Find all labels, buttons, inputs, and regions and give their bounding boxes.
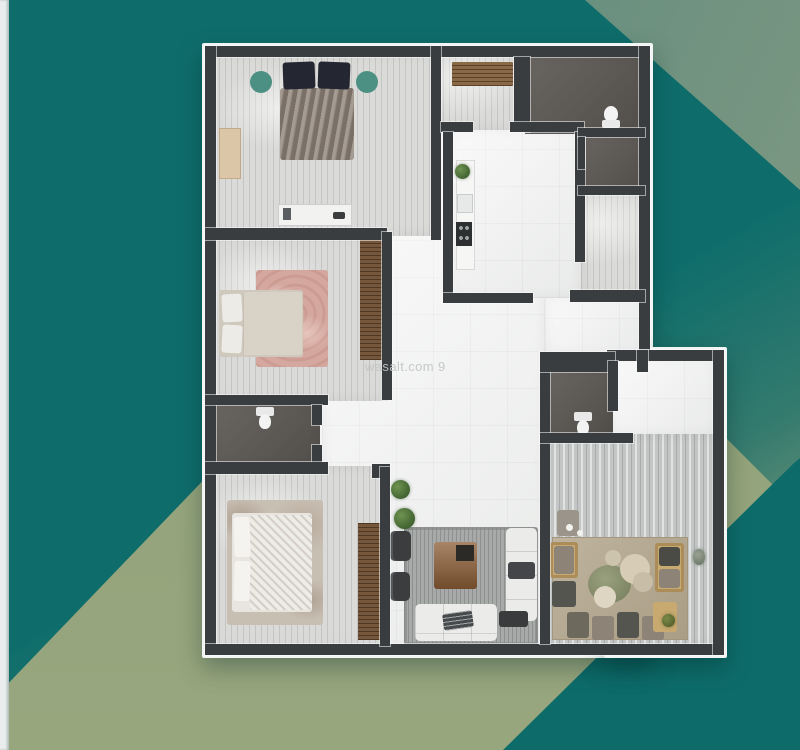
wall (607, 350, 724, 361)
armchair (390, 572, 410, 601)
entry-bench (452, 62, 513, 86)
accent-circle-left (250, 71, 272, 93)
kitchen-stove (456, 222, 472, 246)
majlis-plant (662, 614, 675, 627)
bedroom3-pillow (233, 561, 250, 602)
room-hallway-right (545, 296, 645, 356)
bedroom2-wardrobe (360, 237, 382, 360)
majlis-seat (554, 546, 574, 574)
master-bed-pillow (318, 61, 351, 89)
wall (540, 352, 550, 644)
accent-circle-right (356, 71, 378, 93)
wall (380, 467, 390, 646)
wall (443, 293, 533, 303)
room-corridor (581, 192, 645, 296)
console-decor (333, 212, 345, 219)
wall (382, 232, 392, 400)
toilet (602, 120, 620, 128)
room-shower (581, 134, 645, 192)
ottoman (499, 611, 528, 627)
wall (639, 46, 650, 352)
majlis-seat (557, 510, 579, 536)
bedroom2-pillow (221, 324, 242, 353)
majlis-sofa-cushion (659, 547, 680, 566)
wall (578, 186, 645, 195)
bedroom2-bed-mattress (243, 292, 302, 355)
bedroom2-pillow (221, 293, 242, 322)
console-decor (283, 208, 291, 220)
master-bed-pillow (283, 61, 316, 89)
wall (578, 128, 645, 137)
wall (205, 395, 328, 405)
tv-cabinet-top (456, 545, 474, 561)
majlis-sofa-cushion (659, 569, 680, 588)
chaise-cushion (508, 562, 535, 579)
vestibule-plant (693, 549, 705, 565)
wall (570, 290, 645, 302)
majlis-table-small (605, 550, 621, 566)
wall (514, 57, 530, 132)
wall (205, 46, 216, 655)
toilet (259, 414, 271, 429)
watermark: wasalt.com 9 (365, 359, 446, 374)
room-vestibule (610, 356, 717, 436)
majlis-table-small (594, 586, 616, 608)
kitchen-plant (455, 164, 470, 179)
wall (540, 352, 615, 372)
bedroom3-bed-duvet (250, 515, 312, 610)
majlis-seat (567, 612, 589, 638)
kitchen-sink (457, 194, 473, 213)
bedroom3-wardrobe (358, 523, 380, 640)
living-plant (394, 508, 415, 529)
wall (205, 228, 387, 240)
left-edge-strip (0, 0, 9, 750)
living-plant (391, 480, 410, 499)
wall (540, 433, 633, 443)
bedroom3-pillow (233, 517, 250, 558)
majlis-seat (552, 581, 576, 607)
wall (205, 462, 328, 474)
wall (431, 46, 441, 240)
wall (312, 405, 322, 425)
wall (637, 350, 648, 372)
wall (443, 132, 453, 303)
wall (608, 361, 618, 411)
majlis-seat (617, 612, 639, 638)
majlis-seat (592, 616, 614, 640)
wall (713, 350, 724, 655)
wall (441, 122, 473, 132)
floor-plan: wasalt.com 9 (205, 46, 724, 655)
pendant-light (566, 524, 573, 531)
majlis-table-small (633, 572, 653, 592)
wall (578, 137, 585, 169)
wall (510, 122, 584, 132)
master-wardrobe (219, 128, 241, 179)
wall (205, 46, 650, 57)
wall (205, 644, 724, 655)
armchair (390, 531, 411, 561)
pendant-light (577, 530, 583, 536)
master-bed-duvet (280, 88, 354, 160)
